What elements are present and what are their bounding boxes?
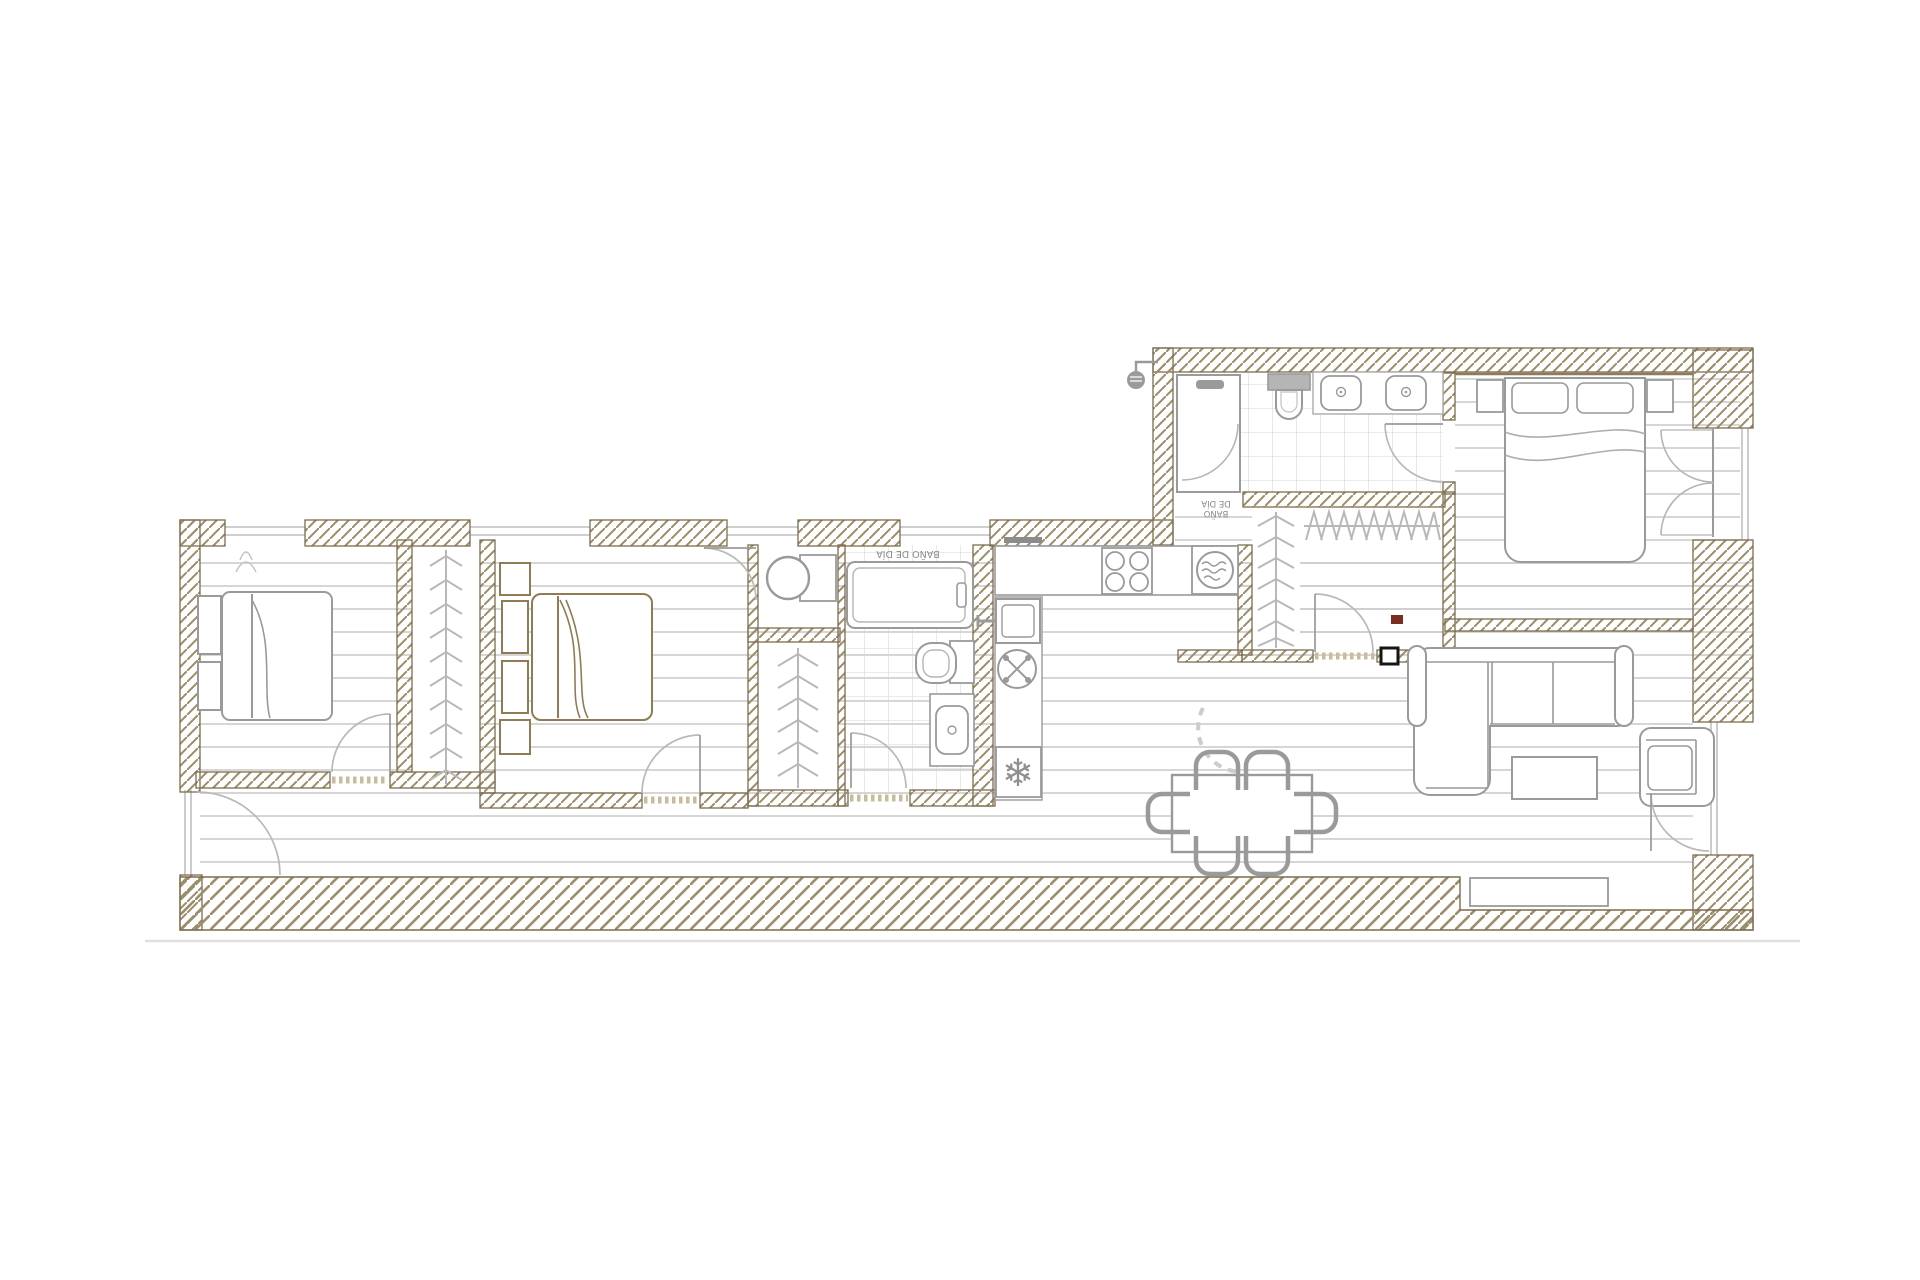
- wall-wardrobe2-bottom: [748, 790, 838, 806]
- washbasin: [936, 706, 968, 754]
- wall-bathroom-bottom-a: [838, 790, 848, 806]
- shower-cabin: [1177, 375, 1240, 492]
- night-bathroom-label: BAÑO DE DÍA: [1201, 498, 1231, 519]
- night-toilet-bowl: [1276, 390, 1302, 419]
- wall-master-bottom: [1445, 619, 1693, 631]
- wc-room: [767, 555, 836, 601]
- bedroom1-bed: [222, 592, 332, 720]
- wall-bedroom1-bottom-a: [196, 772, 330, 788]
- wc-toilet-bowl: [767, 557, 809, 599]
- floor-plan-drawing: BAÑO DE DÍA: [0, 0, 1920, 1280]
- bedroom2-cabinet-bottom: [500, 720, 530, 754]
- bathtub-faucet: [957, 583, 966, 607]
- wall-bedroom2-bottom-a: [480, 793, 642, 808]
- wall-bathroom-right: [973, 545, 993, 806]
- window-gallery-left: [185, 790, 191, 875]
- window-wc: [727, 527, 798, 535]
- bedroom2-nightstand-b: [502, 661, 528, 713]
- wall-left: [180, 520, 200, 792]
- wall-corner-topright: [1693, 350, 1753, 428]
- wall-wardrobe1-right: [480, 540, 495, 793]
- wall-bedroom1-bottom-b: [390, 772, 495, 788]
- kitchen-wall-strip: [1004, 537, 1042, 543]
- wall-hall-bottom-a: [1242, 650, 1313, 662]
- window-bathroom: [900, 527, 990, 535]
- wall-wardrobe1-left: [397, 540, 412, 772]
- wall-top-seg2: [305, 520, 470, 546]
- shower-head-icon: [1127, 371, 1145, 389]
- window-master-right: [1742, 428, 1748, 540]
- master-pillow-left: [1512, 383, 1568, 413]
- structural-column: [1381, 648, 1398, 664]
- washing-machine: [1192, 546, 1238, 594]
- sofa-arm-left: [1408, 646, 1426, 726]
- bedroom2-bed: [532, 594, 652, 720]
- floor-plan-page: BAÑO DE DÍA: [0, 0, 1920, 1280]
- window-bedroom1: [225, 527, 305, 535]
- wall-wc-wardrobe-divider: [748, 628, 840, 642]
- dining-table: [1172, 775, 1312, 852]
- master-pillow-right: [1577, 383, 1633, 413]
- bedroom2-nightstand-a: [502, 601, 528, 653]
- bathtub: [847, 562, 973, 628]
- double-vanity: [1313, 372, 1443, 414]
- svg-text:BAÑO: BAÑO: [1203, 508, 1228, 519]
- wall-right-thick: [1693, 540, 1753, 722]
- shower-drain-icon: [1196, 380, 1224, 389]
- master-nightstand-right: [1647, 380, 1673, 412]
- wall-nightbath-bottom: [1243, 492, 1445, 507]
- master-nightstand-left: [1477, 380, 1503, 412]
- wall-bathroom-left: [838, 545, 845, 806]
- svg-text:DE DÍA: DE DÍA: [1201, 498, 1231, 510]
- wall-kitchen-bottom: [1178, 650, 1242, 662]
- bedroom1-nightstand-bottom: [198, 662, 221, 710]
- tv-sideboard: [1470, 878, 1608, 906]
- bedroom1-nightstand-top: [198, 596, 221, 654]
- wall-kitchen-right: [1238, 545, 1252, 655]
- coffee-table: [1512, 757, 1597, 799]
- snowflake-icon: ❄: [1002, 751, 1034, 795]
- wall-bedroom2-bottom-b: [700, 793, 748, 808]
- day-bathroom-label: BAÑO DE DÍA: [876, 548, 940, 560]
- fridge: ❄: [996, 747, 1041, 797]
- wall-hall-master: [1443, 492, 1455, 662]
- bedroom2-cabinet-top: [500, 563, 530, 595]
- kitchen-prep-appliance: [998, 650, 1036, 688]
- wall-top-seg3: [590, 520, 727, 546]
- wall-upper-top: [1153, 348, 1753, 372]
- door-marker-red: [1391, 615, 1403, 624]
- window-bedroom2: [470, 527, 590, 535]
- wall-upper-left: [1153, 348, 1173, 545]
- sofa-arm-right: [1615, 646, 1633, 726]
- wall-bath-master-a: [1443, 373, 1455, 420]
- wall-top-seg4: [798, 520, 900, 546]
